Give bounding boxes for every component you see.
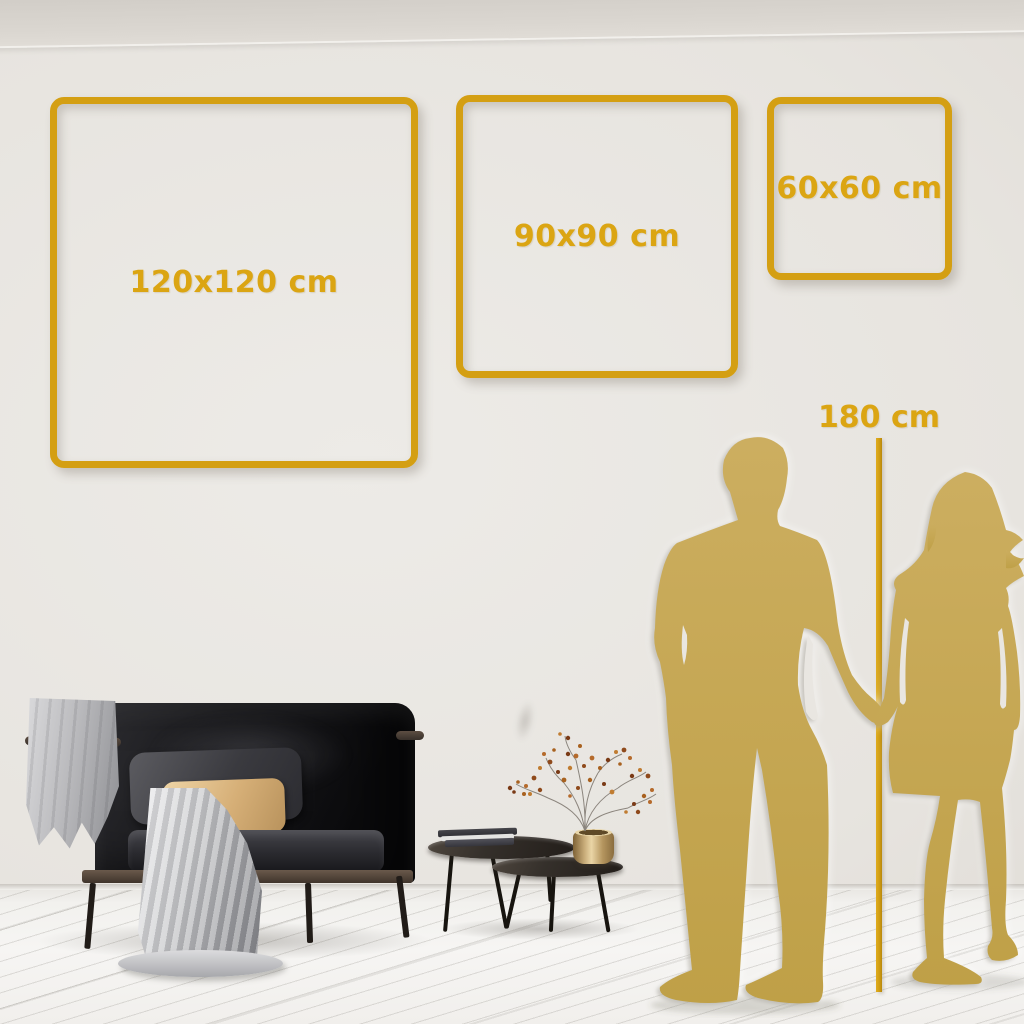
size-frame-60x60: 60x60 cm	[767, 97, 952, 280]
plant-branches	[516, 736, 656, 831]
size-frame-120x120: 120x120 cm	[50, 97, 418, 468]
size-guide-scene: 120x120 cm 90x90 cm 60x60 cm 180 cm	[0, 0, 1024, 1024]
size-frame-90x90: 90x90 cm	[456, 95, 738, 378]
dried-plant	[480, 728, 660, 848]
sofa-wood-rod-right	[396, 731, 424, 740]
woman-silhouette	[874, 472, 1024, 985]
throw-blanket-pool	[118, 950, 283, 977]
ceiling	[0, 0, 1024, 48]
man-silhouette	[654, 437, 884, 1003]
size-label-90x90: 90x90 cm	[514, 222, 680, 252]
plant-berries	[508, 732, 654, 814]
couple-silhouette	[640, 430, 1024, 1024]
size-label-60x60: 60x60 cm	[776, 174, 942, 204]
size-label-120x120: 120x120 cm	[129, 268, 338, 298]
height-label: 180 cm	[797, 403, 961, 433]
